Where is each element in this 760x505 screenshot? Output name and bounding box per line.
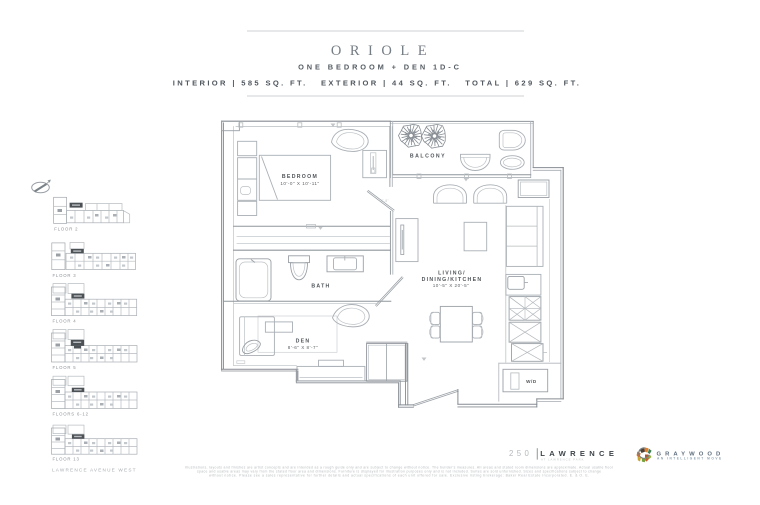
svg-text:250: 250 (509, 449, 532, 458)
svg-text:ORIOLE: ORIOLE (331, 43, 435, 59)
svg-text:BATH: BATH (311, 284, 330, 290)
svg-text:ONE BEDROOM + DEN 1D-C: ONE BEDROOM + DEN 1D-C (298, 63, 462, 72)
svg-text:BALCONY: BALCONY (410, 154, 446, 160)
svg-text:2'-8": 2'-8" (381, 199, 389, 203)
svg-text:DINING/KITCHEN: DINING/KITCHEN (422, 277, 483, 283)
svg-text:FLOOR 5: FLOOR 5 (53, 365, 77, 370)
svg-text:10'-5" X 20'-5": 10'-5" X 20'-5" (433, 283, 470, 288)
svg-text:LIVING/: LIVING/ (438, 271, 466, 277)
svg-text:FLOORS 6-12: FLOORS 6-12 (53, 411, 89, 416)
svg-text:8'-6" X 8'-7": 8'-6" X 8'-7" (288, 345, 318, 350)
svg-text:W/D: W/D (526, 379, 537, 384)
svg-text:AT LAWRENCE PARK: AT LAWRENCE PARK (541, 457, 584, 461)
svg-text:without notice. Please see a s: without notice. Please see a sales repre… (209, 474, 589, 478)
svg-text:FLOOR 3: FLOOR 3 (53, 273, 77, 278)
svg-text:DEN: DEN (296, 338, 311, 344)
svg-text:FLOOR 13: FLOOR 13 (53, 457, 80, 462)
svg-text:INTERIOR | 585 SQ. FT. EXTER: INTERIOR | 585 SQ. FT. EXTERIOR | 44 SQ.… (173, 79, 581, 88)
svg-text:BEDROOM: BEDROOM (282, 174, 318, 180)
svg-text:AN INTELLIGENT MOVE: AN INTELLIGENT MOVE (657, 457, 722, 461)
svg-text:FLOOR 2: FLOOR 2 (54, 226, 78, 231)
svg-text:LAWRENCE AVENUE WEST: LAWRENCE AVENUE WEST (52, 467, 137, 472)
svg-text:10'-0" X 10'-11": 10'-0" X 10'-11" (280, 181, 319, 186)
svg-text:FLOOR 4: FLOOR 4 (53, 319, 77, 324)
